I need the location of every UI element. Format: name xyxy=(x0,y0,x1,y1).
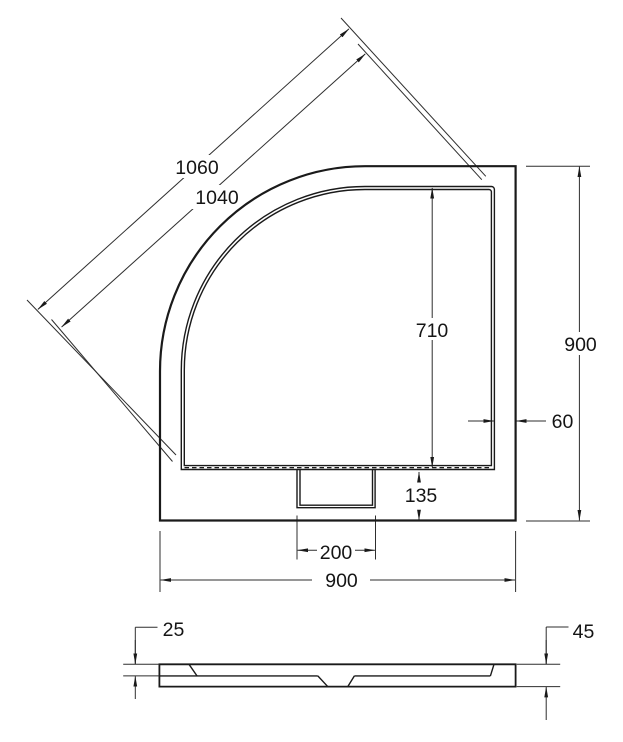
svg-text:710: 710 xyxy=(416,320,449,342)
svg-text:60: 60 xyxy=(552,411,574,433)
svg-text:900: 900 xyxy=(564,334,597,356)
svg-text:200: 200 xyxy=(320,542,353,564)
svg-text:135: 135 xyxy=(405,485,438,507)
svg-text:1060: 1060 xyxy=(175,157,219,179)
svg-text:25: 25 xyxy=(163,619,185,641)
svg-text:45: 45 xyxy=(573,621,595,643)
svg-text:900: 900 xyxy=(325,570,358,592)
svg-text:1040: 1040 xyxy=(195,187,239,209)
